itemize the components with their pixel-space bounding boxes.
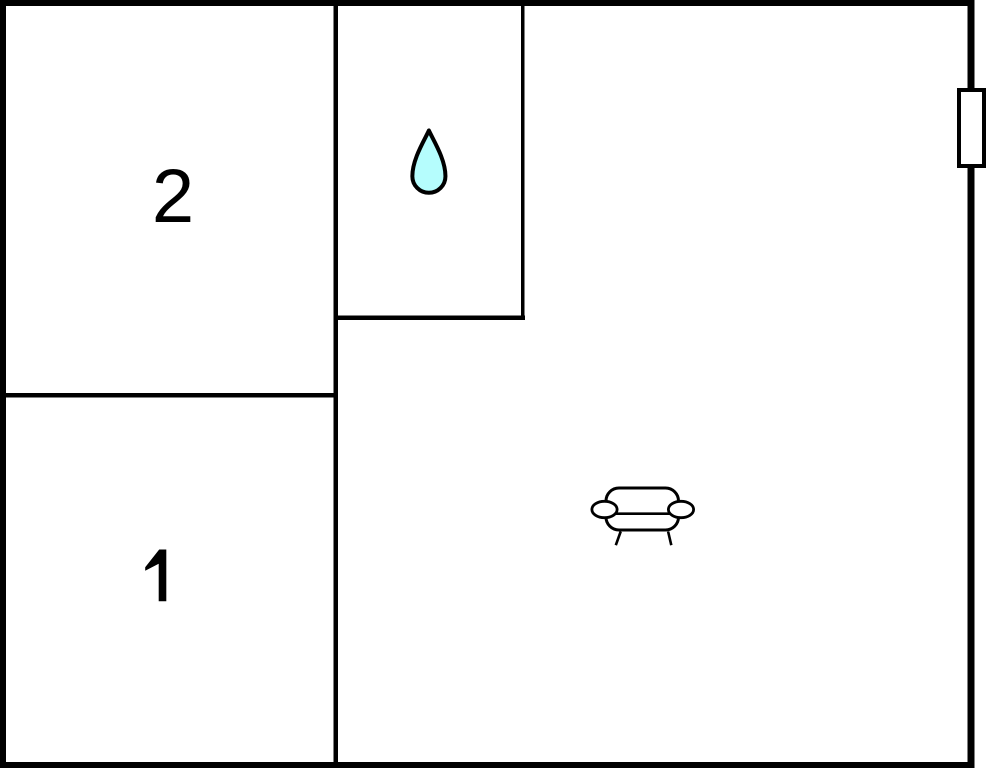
svg-text:2: 2	[152, 154, 194, 239]
